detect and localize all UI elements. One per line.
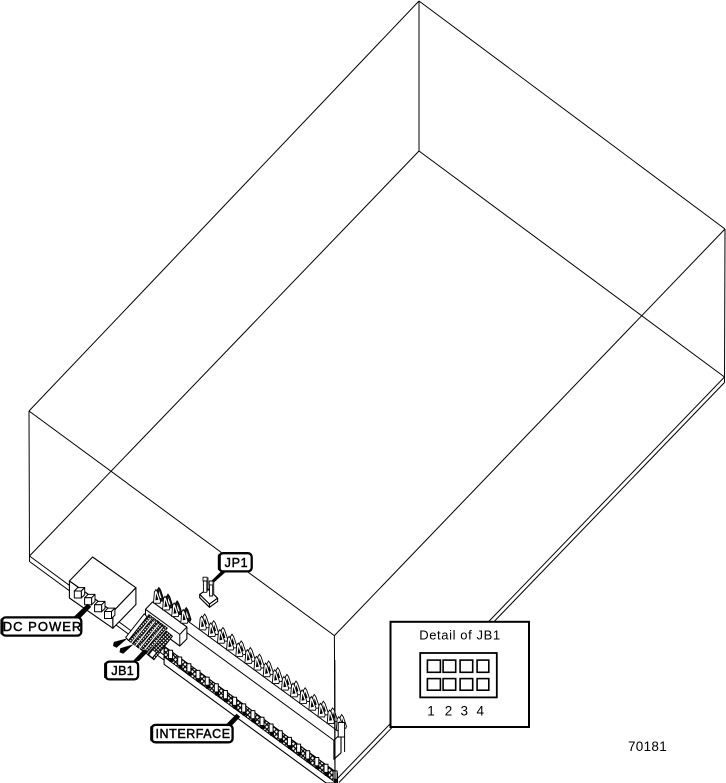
svg-text:2: 2 [445, 704, 453, 719]
svg-text:4: 4 [477, 704, 485, 719]
svg-text:JP1: JP1 [225, 556, 249, 570]
svg-text:JB1: JB1 [111, 664, 134, 678]
svg-text:3: 3 [461, 704, 469, 719]
svg-text:70181: 70181 [628, 739, 667, 754]
svg-text:INTERFACE: INTERFACE [156, 727, 231, 741]
svg-text:1: 1 [427, 704, 435, 719]
svg-text:DC POWER: DC POWER [3, 619, 83, 634]
svg-text:Detail of JB1: Detail of JB1 [419, 628, 501, 643]
